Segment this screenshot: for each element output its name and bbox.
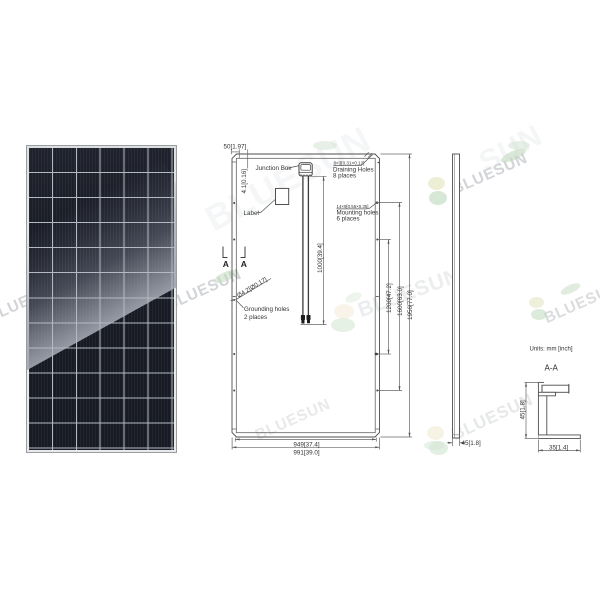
svg-text:A: A [223, 259, 229, 269]
svg-text:Grounding holes: Grounding holes [244, 306, 289, 313]
svg-text:Ø4.2[Ø0.17]: Ø4.2[Ø0.17] [236, 276, 269, 300]
svg-text:Units: mm [inch]: Units: mm [inch] [530, 347, 573, 353]
svg-text:1956[77.0]: 1956[77.0] [407, 290, 414, 320]
svg-text:A-A: A-A [545, 363, 559, 372]
svg-text:45[1.8]: 45[1.8] [462, 440, 482, 447]
svg-text:45[1.8]: 45[1.8] [520, 400, 527, 420]
svg-text:14×9[0.55×0.35]: 14×9[0.55×0.35] [337, 204, 369, 209]
svg-text:1600[63.0]: 1600[63.0] [397, 286, 404, 316]
svg-text:1000[39.4]: 1000[39.4] [317, 243, 324, 273]
svg-text:35[1.4]: 35[1.4] [549, 444, 569, 451]
svg-text:1200[47.2]: 1200[47.2] [386, 283, 393, 313]
svg-text:6 places: 6 places [337, 215, 360, 222]
svg-text:50[1.97]: 50[1.97] [224, 144, 247, 151]
svg-text:2 places: 2 places [244, 314, 267, 321]
svg-text:Label: Label [244, 210, 259, 217]
svg-text:991[39.0]: 991[39.0] [293, 449, 320, 456]
svg-text:A: A [241, 259, 247, 269]
svg-text:8×3[0.31×0.12]: 8×3[0.31×0.12] [334, 161, 365, 166]
svg-text:Junction Box: Junction Box [256, 165, 293, 172]
svg-text:8 places: 8 places [333, 173, 356, 180]
svg-text:4.1[0.16]: 4.1[0.16] [241, 169, 248, 194]
